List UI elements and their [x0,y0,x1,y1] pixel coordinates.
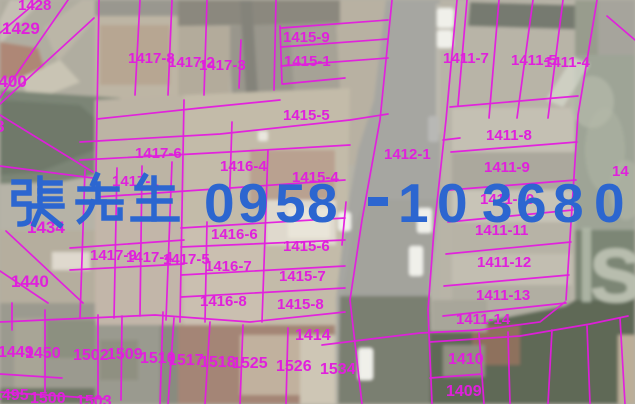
svg-text:1534: 1534 [320,361,356,378]
svg-text:1417-6: 1417-6 [135,145,182,162]
svg-text:1509: 1509 [107,346,143,363]
svg-text:1429: 1429 [2,19,40,38]
svg-text:1495: 1495 [0,387,29,404]
svg-text:1409: 1409 [446,383,482,400]
svg-text:1500: 1500 [30,390,66,404]
svg-text:1525: 1525 [232,355,268,372]
svg-text:1502: 1502 [73,347,109,364]
svg-text:1416-8: 1416-8 [200,293,247,310]
svg-text:1526: 1526 [276,358,312,375]
svg-text:1417-3: 1417-3 [199,57,246,74]
svg-text:1411-4: 1411-4 [544,54,591,71]
svg-text:1503: 1503 [76,393,112,404]
svg-text:1412-1: 1412-1 [384,146,431,163]
svg-text:1415-9: 1415-9 [283,29,330,46]
svg-text:1450: 1450 [25,345,61,362]
svg-text:1411-8: 1411-8 [486,127,532,144]
svg-text:1440: 1440 [11,272,49,291]
svg-text:1415-7: 1415-7 [279,268,326,285]
svg-text:1411-14: 1411-14 [456,311,511,328]
svg-text:1517: 1517 [168,352,204,369]
svg-text:8: 8 [0,117,4,136]
svg-text:0958103680: 0958103680 [204,172,625,234]
svg-text:1411-7: 1411-7 [443,50,489,67]
svg-text:1414: 1414 [295,327,331,344]
svg-text:1410: 1410 [448,351,484,368]
svg-text:1411-12: 1411-12 [477,254,531,271]
svg-text:1416-7: 1416-7 [205,258,252,275]
svg-text:1400: 1400 [0,72,27,91]
svg-text:1428: 1428 [18,0,51,14]
svg-text:1417-5: 1417-5 [163,251,210,268]
svg-text:1415-5: 1415-5 [283,107,330,124]
svg-text:1411-13: 1411-13 [476,287,530,304]
svg-text:1415-6: 1415-6 [283,238,330,255]
svg-text:1415-1: 1415-1 [284,53,331,70]
svg-text:1415-8: 1415-8 [277,296,324,313]
svg-text:1518: 1518 [200,354,236,371]
